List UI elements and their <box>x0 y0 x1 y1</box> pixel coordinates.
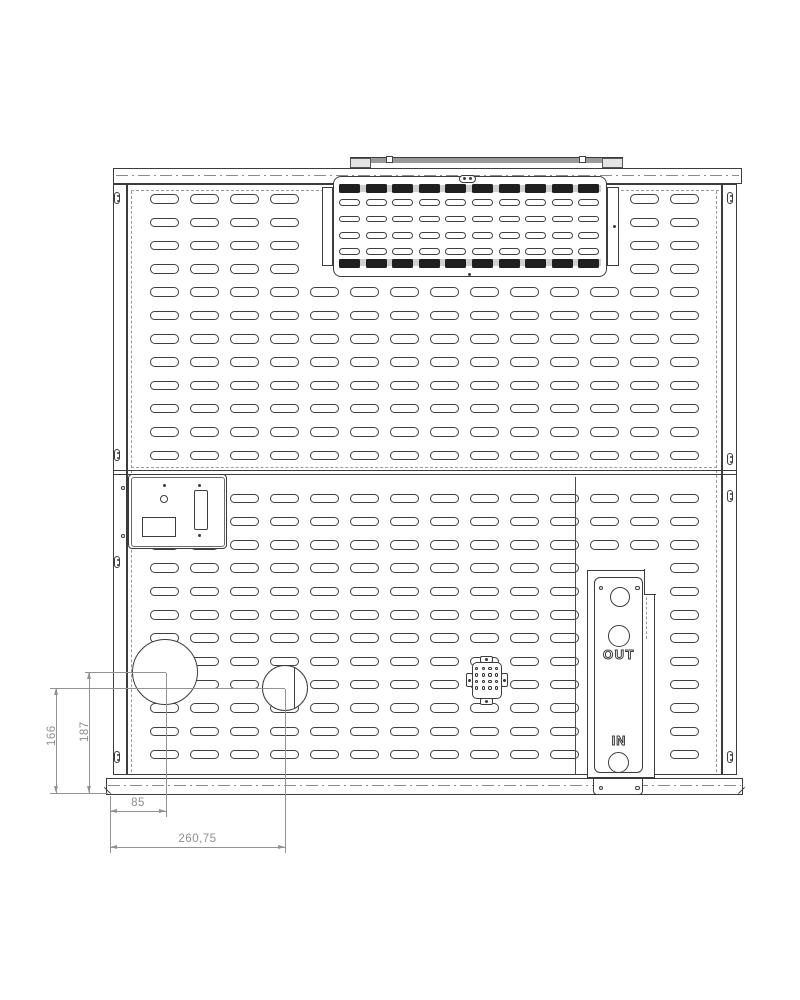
vent-hole <box>495 680 498 683</box>
base-rail-centerline <box>108 785 741 786</box>
vent-hole <box>488 686 491 689</box>
keyhole-dot <box>730 498 732 500</box>
keyhole-dot <box>117 457 119 459</box>
vent-plate-screw <box>485 700 488 703</box>
vent-hole <box>475 673 478 676</box>
panel-technical-drawing: OUT IN 166 187 85 260,75 <box>0 0 800 1000</box>
dimension-value-166: 166 <box>46 725 58 746</box>
keyhole-dot <box>117 754 119 756</box>
keyhole-screw <box>114 751 120 763</box>
keyhole-dot <box>730 200 732 202</box>
vent-plate-screw <box>485 658 488 661</box>
vent-plate-screw <box>503 679 506 682</box>
arrow-icon <box>54 786 58 793</box>
dimension-value-85: 85 <box>110 797 166 809</box>
in-port-hole <box>608 752 629 773</box>
dimension-line-260 <box>110 847 285 848</box>
vent-hole <box>488 680 491 683</box>
vent-plate-screw <box>468 679 471 682</box>
vent-plate-holes <box>0 0 800 1000</box>
vent-hole <box>482 680 485 683</box>
base-rail <box>106 778 743 795</box>
keyhole-dot <box>117 452 119 454</box>
keyhole-dot <box>730 461 732 463</box>
keyhole-dot <box>730 195 732 197</box>
keyhole-dot <box>730 456 732 458</box>
vent-hole <box>475 667 478 670</box>
arrow-icon <box>110 809 117 813</box>
vent-hole <box>495 686 498 689</box>
vent-hole <box>495 667 498 670</box>
keyhole-dot <box>117 200 119 202</box>
extension-line <box>85 672 166 673</box>
plate-screw-hole <box>635 586 640 591</box>
keyhole-screw <box>727 192 733 204</box>
keyhole-dot <box>730 759 732 761</box>
vent-hole <box>495 673 498 676</box>
keyhole-screw <box>114 192 120 204</box>
keyhole-dot <box>730 754 732 756</box>
extension-line <box>50 688 285 689</box>
keyhole-screw <box>727 751 733 763</box>
connection-plate-notch <box>644 569 657 595</box>
port-hole-top <box>610 587 630 607</box>
arrow-icon <box>159 809 166 813</box>
keyhole-dot <box>117 195 119 197</box>
vent-hole <box>488 673 491 676</box>
arrow-icon <box>54 688 58 695</box>
arrow-icon <box>278 845 285 849</box>
dimension-line-85 <box>110 811 166 812</box>
vent-hole <box>488 667 491 670</box>
vent-hole <box>475 686 478 689</box>
arrow-icon <box>87 672 91 679</box>
keyhole-screw <box>114 449 120 461</box>
extension-line <box>50 793 108 794</box>
keyhole-dot <box>117 559 119 561</box>
tab-screw-hole <box>635 786 640 791</box>
arrow-icon <box>87 786 91 793</box>
keyhole-screw <box>114 556 120 568</box>
keyhole-dot <box>117 564 119 566</box>
arrow-icon <box>110 845 117 849</box>
vent-hole <box>482 686 485 689</box>
vent-hole <box>482 673 485 676</box>
extension-line <box>166 673 167 817</box>
keyhole-dot <box>730 493 732 495</box>
vent-hole <box>475 680 478 683</box>
keyhole-screw <box>727 490 733 502</box>
keyhole-screw <box>727 453 733 465</box>
tab-screw-hole <box>599 786 604 791</box>
out-port-hole <box>608 625 630 647</box>
extension-line <box>285 689 286 853</box>
keyhole-dot <box>117 759 119 761</box>
dimension-value-187: 187 <box>79 721 91 742</box>
vent-hole <box>482 667 485 670</box>
out-label: OUT <box>589 647 649 662</box>
connection-plate-hidden-edge <box>646 597 647 639</box>
dimension-value-260: 260,75 <box>110 833 285 845</box>
plate-screw-hole <box>599 586 604 591</box>
in-label: IN <box>589 734 649 748</box>
